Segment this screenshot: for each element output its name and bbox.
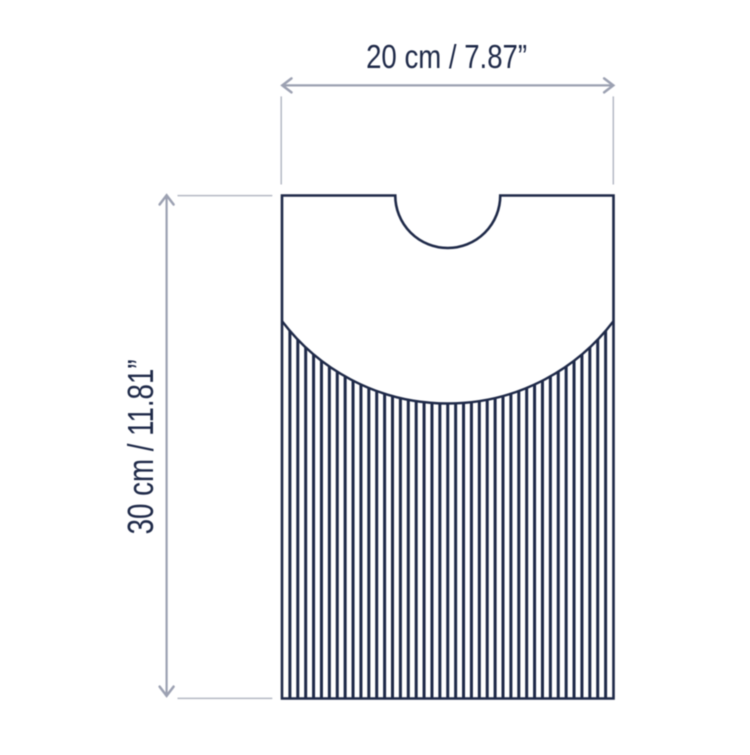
svg-text:20 cm / 7.87”: 20 cm / 7.87”: [366, 38, 527, 75]
svg-text:30 cm / 11.81”: 30 cm / 11.81”: [120, 359, 161, 534]
